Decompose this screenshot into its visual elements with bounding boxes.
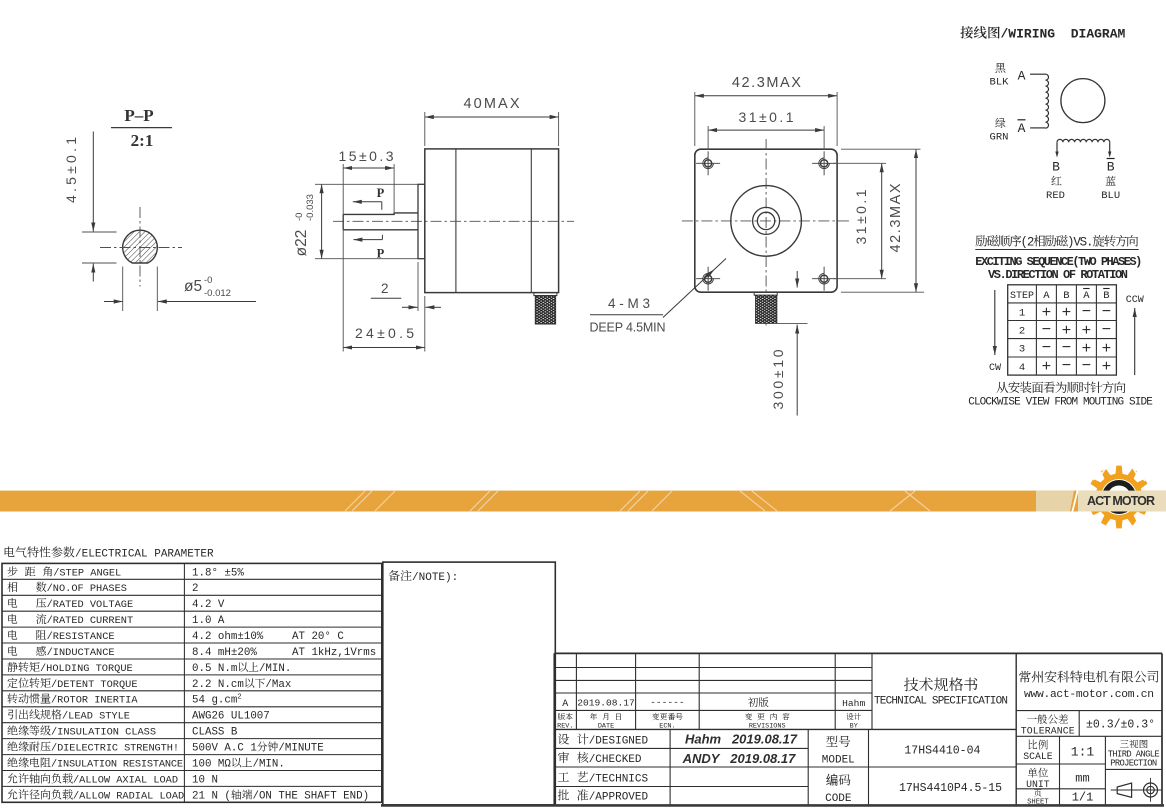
svg-text:DEEP 4.5MIN: DEEP 4.5MIN (590, 321, 666, 335)
svg-text:DATE: DATE (598, 722, 614, 730)
svg-text:励磁顺序(2相励磁)VS.旋转方向: 励磁顺序(2相励磁)VS.旋转方向 (975, 232, 1138, 250)
svg-text:-0.012: -0.012 (204, 288, 231, 299)
svg-text:TECHNICAL SPECIFICATION: TECHNICAL SPECIFICATION (874, 696, 1008, 708)
svg-text:AWG26 UL1007: AWG26 UL1007 (192, 708, 270, 723)
svg-text:A: A (1043, 290, 1050, 302)
svg-text:黑: 黑 (995, 60, 1006, 76)
svg-text:年 月 日: 年 月 日 (590, 711, 623, 722)
svg-text:三视图: 三视图 (1119, 737, 1148, 751)
svg-text:ACT MOTOR: ACT MOTOR (1087, 494, 1155, 508)
svg-text:2019.08.17: 2019.08.17 (577, 697, 635, 708)
svg-text:3: 3 (1019, 344, 1025, 356)
svg-text:A: A (1018, 121, 1026, 136)
svg-text:mm: mm (1075, 772, 1089, 786)
svg-text:-0.033: -0.033 (305, 194, 316, 221)
svg-text:BY: BY (850, 722, 858, 730)
svg-text:Hahm: Hahm (842, 698, 865, 709)
svg-text:Hahm 2019.08.17: Hahm 2019.08.17 (685, 732, 798, 747)
svg-text:4.2 ohm±10%: 4.2 ohm±10% (192, 628, 264, 643)
svg-text:www.act-motor.com.cn: www.act-motor.com.cn (1024, 689, 1154, 701)
svg-text:PROJECTION: PROJECTION (1110, 759, 1157, 769)
svg-text:B: B (1063, 290, 1069, 302)
svg-text:MODEL: MODEL (822, 755, 855, 767)
svg-text:B: B (1103, 290, 1109, 302)
svg-text:SHEET: SHEET (1027, 799, 1049, 807)
svg-text:变更番号: 变更番号 (652, 711, 683, 722)
svg-text:设计: 设计 (846, 711, 862, 722)
svg-text:从安装面看为顺时针方向: 从安装面看为顺时针方向 (996, 378, 1126, 396)
svg-text:RED: RED (1046, 190, 1065, 202)
svg-text:P: P (377, 186, 385, 200)
svg-text:+: + (1042, 358, 1051, 375)
svg-text:−: − (1042, 321, 1051, 338)
svg-text:-0: -0 (204, 275, 212, 286)
svg-text:100 MΩ以上/MIN.: 100 MΩ以上/MIN. (192, 756, 285, 771)
svg-text:AT 1kHz,1Vrms: AT 1kHz,1Vrms (292, 647, 376, 659)
svg-text:CLASS B: CLASS B (192, 724, 238, 739)
svg-text:42.3MAX: 42.3MAX (888, 183, 904, 252)
svg-text:型号: 型号 (826, 732, 852, 750)
svg-text:−: − (1042, 339, 1051, 356)
svg-text:ECN.: ECN. (659, 722, 675, 730)
svg-text:1:1: 1:1 (1071, 745, 1095, 760)
svg-text:REV.: REV. (557, 722, 573, 730)
svg-text:17HS4410-04: 17HS4410-04 (904, 745, 980, 758)
svg-text:ø5: ø5 (184, 278, 202, 295)
svg-text:17HS4410P4.5-15: 17HS4410P4.5-15 (899, 782, 1002, 795)
svg-text:8.4 mH±20%: 8.4 mH±20% (192, 644, 257, 659)
svg-text:1.0 A: 1.0 A (192, 612, 225, 627)
svg-text:EXCITING SEQUENCE(TWO PHASES): EXCITING SEQUENCE(TWO PHASES) (975, 255, 1142, 269)
svg-text:2:1: 2:1 (131, 131, 154, 150)
svg-text:TOLERANCE: TOLERANCE (1021, 726, 1075, 737)
svg-text:+: + (1042, 304, 1051, 321)
svg-text:2: 2 (1019, 325, 1025, 337)
svg-text:−: − (1102, 303, 1111, 320)
svg-text:A: A (1083, 290, 1090, 302)
svg-text:−: − (1062, 339, 1071, 356)
svg-text:1.8° ±5%: 1.8° ±5% (192, 564, 244, 579)
svg-text:+: + (1102, 340, 1111, 357)
svg-text:2.2 N.cm以下/Max: 2.2 N.cm以下/Max (192, 676, 291, 691)
svg-text:2: 2 (381, 281, 389, 296)
svg-text:初版: 初版 (748, 695, 769, 710)
svg-text:CW: CW (989, 363, 1001, 374)
svg-text:P–P: P–P (124, 106, 153, 125)
svg-text:4: 4 (1019, 362, 1025, 374)
svg-text:−: − (1062, 357, 1071, 374)
svg-text:500V A.C 1分钟/MINUTE: 500V A.C 1分钟/MINUTE (192, 740, 324, 755)
svg-text:BLU: BLU (1101, 190, 1120, 202)
svg-text:−: − (1102, 321, 1111, 338)
svg-text:编码: 编码 (826, 771, 852, 789)
svg-text:REVISIONS: REVISIONS (749, 722, 786, 730)
svg-text:+: + (1062, 322, 1071, 339)
svg-text:A: A (1018, 69, 1026, 84)
svg-text:常州安科特电机有限公司: 常州安科特电机有限公司 (1019, 667, 1160, 686)
svg-text:4-M3: 4-M3 (608, 296, 650, 311)
svg-text:红: 红 (1051, 173, 1062, 189)
svg-text:54 g.cm2: 54 g.cm2 (192, 692, 242, 707)
svg-text:BLK: BLK (990, 77, 1010, 89)
svg-text:蓝: 蓝 (1105, 173, 1116, 189)
svg-text:1/1: 1/1 (1072, 791, 1094, 805)
svg-text:CLOCKWISE VIEW FROM MOUTING SI: CLOCKWISE VIEW FROM MOUTING SIDE (968, 397, 1153, 409)
svg-text:GRN: GRN (990, 132, 1009, 144)
svg-text:+: + (1082, 340, 1091, 357)
svg-text:10 N: 10 N (192, 771, 218, 786)
svg-text:0.5 N.m以上/MIN.: 0.5 N.m以上/MIN. (192, 660, 291, 675)
svg-text:−: − (1082, 303, 1091, 320)
svg-text:ANDY 2019.08.17: ANDY 2019.08.17 (682, 751, 797, 766)
svg-text:1: 1 (1019, 307, 1025, 319)
svg-text:2: 2 (192, 580, 198, 595)
svg-text:+: + (1062, 304, 1071, 321)
svg-text:±0.3/±0.3°: ±0.3/±0.3° (1086, 719, 1155, 732)
svg-text:ø22: ø22 (293, 230, 310, 257)
svg-text:------: ------ (650, 697, 685, 708)
svg-text:SCALE: SCALE (1023, 751, 1053, 762)
svg-text:页: 页 (1034, 788, 1042, 799)
svg-text:+: + (1102, 358, 1111, 375)
svg-text:42.3MAX: 42.3MAX (732, 75, 801, 91)
svg-text:VS.DIRECTION OF ROTATION: VS.DIRECTION OF ROTATION (988, 268, 1128, 282)
svg-text:CODE: CODE (825, 793, 852, 805)
svg-text:CCW: CCW (1126, 295, 1144, 306)
svg-text:+: + (1082, 322, 1091, 339)
svg-text:−: − (1082, 357, 1091, 374)
svg-text:STEP: STEP (1010, 291, 1034, 302)
svg-text:21 N (轴端/ON THE SHAFT END): 21 N (轴端/ON THE SHAFT END) (192, 787, 369, 802)
svg-text:版本: 版本 (558, 711, 574, 722)
svg-text:-0: -0 (294, 213, 305, 221)
svg-text:AT 20° C: AT 20° C (292, 631, 344, 643)
svg-text:A: A (562, 699, 568, 710)
svg-text:变 更 内 容: 变 更 内 容 (745, 711, 790, 722)
svg-text:技术规格书: 技术规格书 (903, 674, 978, 695)
svg-text:4.2 V: 4.2 V (192, 596, 225, 611)
svg-text:绿: 绿 (995, 115, 1006, 131)
